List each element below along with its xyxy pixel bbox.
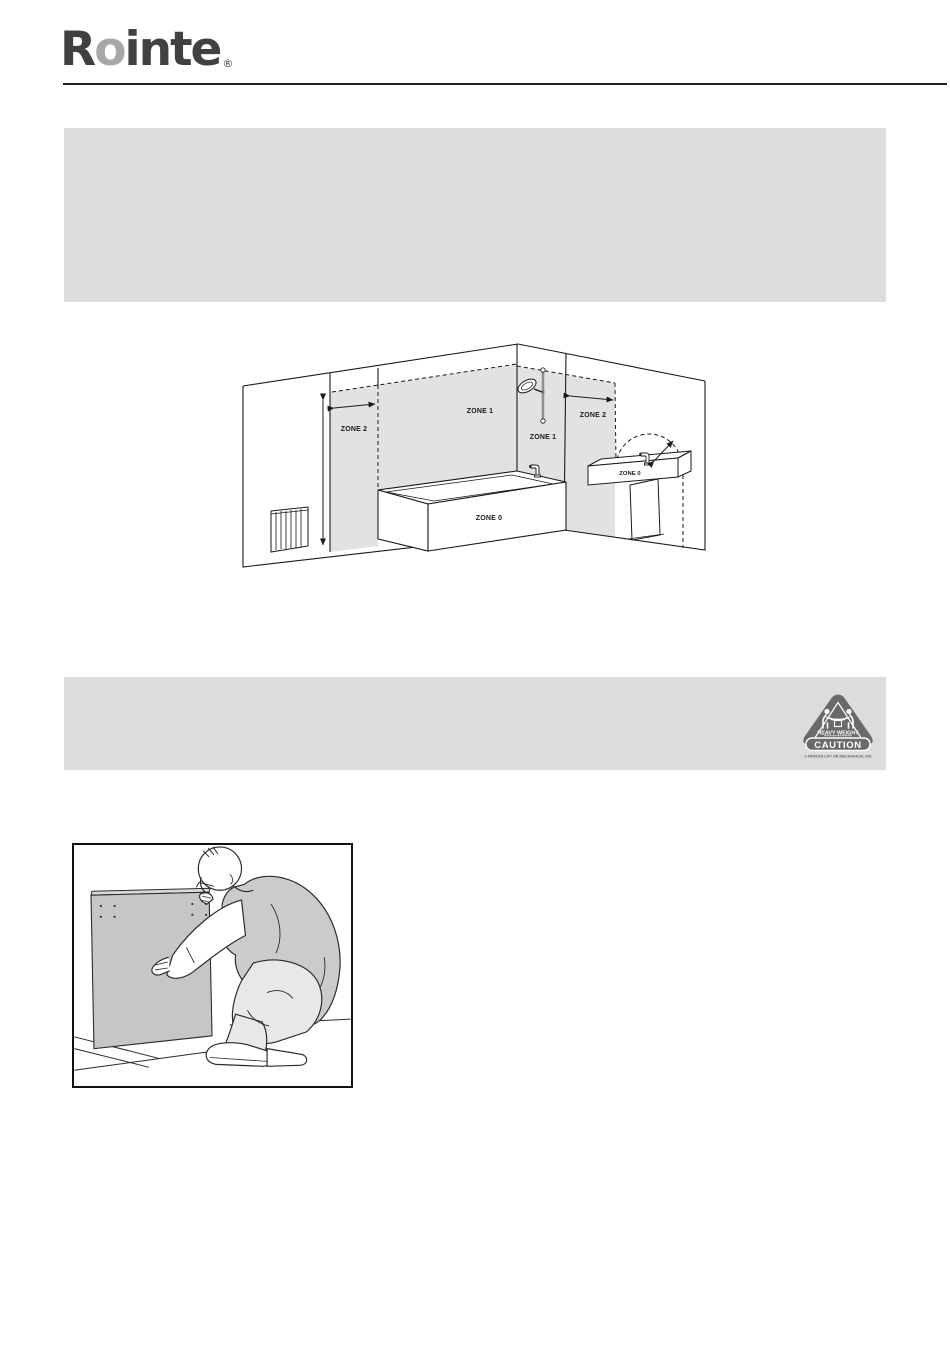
heavy-weight-triangle: HEAVY WEIGHT CAUTION [803,695,872,751]
radiator [271,507,308,552]
logo-letter-r: R [60,22,94,77]
zone1-wall-label: ZONE 1 [467,408,493,415]
zone0-bath-label: ZONE 0 [476,515,502,522]
caution-triangle-icon: HEAVY WEIGHT CAUTION 2 PERSON LIFT OR ME… [797,693,879,761]
registered-trademark-symbol: ® [222,57,233,70]
zone2-right-label: ZONE 2 [580,412,606,419]
logo-letter-o: o [94,22,124,77]
rointe-logo: Rointe® [60,26,231,86]
zone2-left-shaded-area [330,385,378,552]
caution-subtitle-text: 2 PERSON LIFT OR MECHANICAL AID [805,755,872,759]
zone1-shaded-area [378,364,517,490]
text-block-2 [64,677,886,770]
installer-figure-drawing [74,845,351,1086]
text-block-1 [64,128,886,302]
installation-illustration [72,843,353,1088]
caution-text: CAUTION [814,740,861,751]
zone2-left-label: ZONE 2 [341,426,367,433]
manual-page: Rointe® [0,0,950,1348]
logo-letters-inte: inte [125,22,221,77]
bathroom-zones-diagram: ZONE 0 ZONE 0 [240,332,710,572]
zone0-basin-label: ZONE 0 [619,471,641,477]
zone1-shower-label: ZONE 1 [530,434,556,441]
installer-rear-boot [267,1049,307,1067]
header-divider-line [63,83,947,85]
